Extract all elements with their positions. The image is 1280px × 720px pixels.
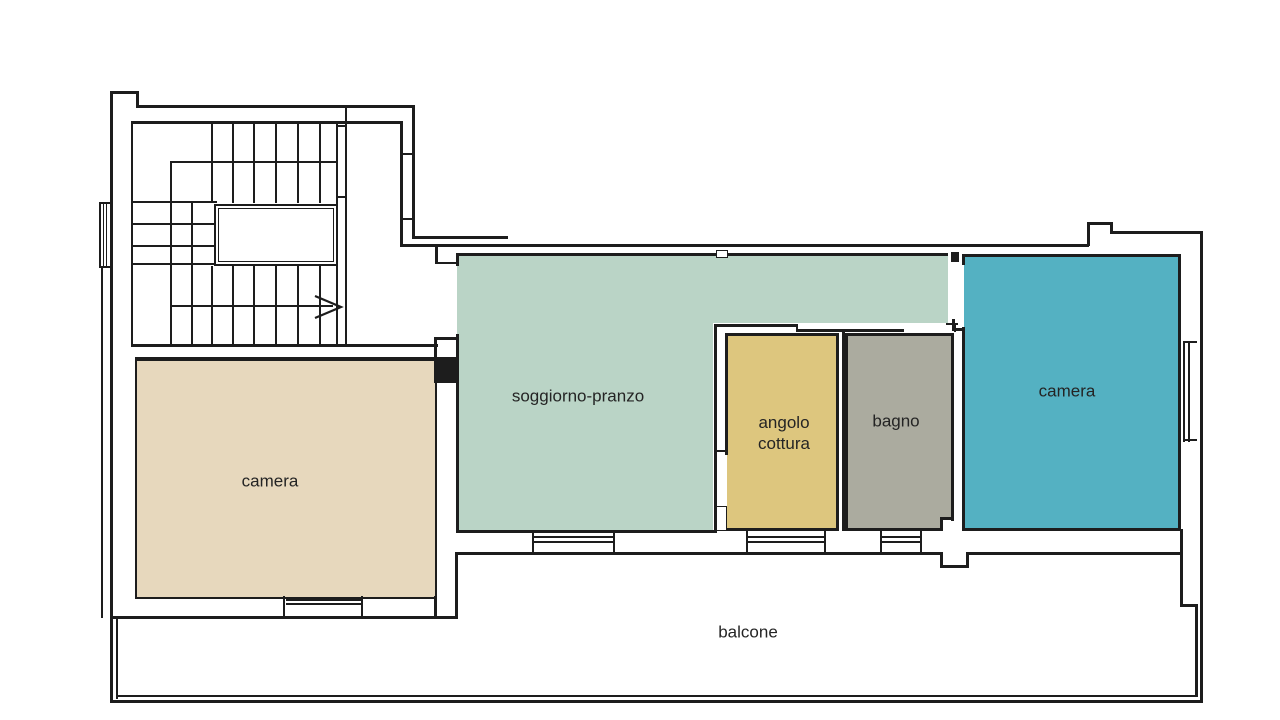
wall-segment — [110, 91, 113, 703]
wall-segment — [962, 254, 1181, 257]
wall-segment — [106, 204, 107, 266]
window-symbol-line — [532, 536, 615, 538]
wall-segment — [456, 253, 459, 266]
window-symbol-line — [1188, 341, 1190, 442]
wall-segment — [435, 244, 438, 264]
stair-line — [131, 263, 217, 265]
label-camera-left: camera — [242, 471, 299, 492]
wall-segment — [116, 619, 118, 699]
wall-segment — [845, 333, 954, 336]
label-balcone: balcone — [718, 622, 778, 643]
wall-segment — [1195, 604, 1198, 697]
wall-segment — [962, 327, 965, 531]
label-soggiorno: soggiorno-pranzo — [512, 386, 644, 407]
wall-segment — [99, 202, 101, 268]
wall-segment — [455, 552, 458, 618]
wall-segment — [434, 357, 458, 383]
wall-segment — [725, 528, 839, 531]
window-symbol-line — [880, 536, 922, 538]
floor-plan: camera soggiorno-pranzo angolo cottura b… — [0, 0, 1280, 720]
wall-notch — [716, 250, 728, 258]
window-symbol-line — [1183, 341, 1197, 343]
wall-segment — [457, 253, 948, 256]
stair-direction-arrow — [313, 294, 345, 320]
wall-segment — [116, 695, 1197, 697]
wall-segment — [400, 153, 414, 155]
label-camera-right: camera — [1039, 381, 1096, 402]
wall-segment — [103, 204, 104, 266]
wall-segment — [962, 254, 965, 265]
stair-line — [191, 201, 193, 345]
wall-segment — [962, 528, 1181, 531]
wall-segment — [136, 105, 415, 108]
wall-segment — [456, 334, 459, 533]
window-symbol-line — [286, 599, 363, 601]
stair-line — [131, 121, 133, 346]
wall-segment — [714, 450, 728, 452]
wall-segment — [1200, 231, 1203, 703]
window-symbol-line — [746, 536, 826, 538]
wall-segment — [1087, 222, 1090, 246]
window-symbol-line — [1183, 341, 1185, 442]
wall-segment — [435, 262, 457, 264]
wall-segment — [725, 333, 728, 455]
wall-segment — [1110, 231, 1203, 234]
wall-segment — [1178, 254, 1181, 531]
window-symbol-line — [286, 603, 363, 605]
wall-segment — [133, 121, 403, 124]
window-symbol-line — [283, 596, 285, 618]
wall-segment — [966, 552, 1182, 555]
wall-segment — [101, 268, 103, 618]
wall-segment — [714, 324, 798, 327]
label-angolo-cottura: angolo cottura — [738, 412, 830, 454]
wall-segment — [798, 329, 904, 332]
wall-segment — [412, 236, 508, 239]
door-jamb — [716, 506, 727, 531]
wall-segment — [725, 333, 839, 336]
wall-segment — [1180, 529, 1183, 607]
stair-landing-inner — [218, 208, 334, 262]
wall-segment — [136, 358, 458, 361]
wall-segment — [714, 324, 717, 532]
label-bagno: bagno — [872, 411, 919, 432]
window-symbol-line — [746, 541, 826, 543]
wall-segment — [940, 518, 943, 530]
wall-segment — [434, 596, 437, 619]
stair-line — [336, 125, 347, 127]
stair-line — [131, 245, 217, 247]
window-symbol-line — [532, 541, 615, 543]
wall-segment — [455, 552, 943, 555]
stair-line — [131, 223, 217, 225]
wall-segment — [951, 333, 954, 521]
wall-segment — [110, 91, 138, 94]
stair-line — [345, 105, 347, 346]
wall-segment — [836, 333, 839, 531]
wall-segment — [845, 528, 943, 531]
wall-segment — [951, 252, 959, 262]
wall-segment — [400, 121, 403, 246]
wall-segment — [434, 337, 458, 340]
stair-line — [131, 201, 217, 203]
wall-segment — [110, 700, 1203, 703]
window-symbol-line — [880, 541, 922, 543]
window-symbol-line — [1183, 439, 1197, 441]
stair-line — [336, 196, 347, 198]
wall-segment — [400, 218, 414, 220]
stair-line — [170, 161, 338, 163]
wall-segment — [456, 530, 717, 533]
stair-line — [170, 305, 333, 307]
wall-segment — [940, 565, 969, 568]
stair-line — [170, 161, 172, 345]
wall-segment — [99, 266, 112, 268]
stair-line — [131, 344, 438, 347]
wall-segment — [845, 333, 848, 531]
wall-segment — [940, 517, 954, 520]
wall-segment — [400, 244, 1089, 247]
